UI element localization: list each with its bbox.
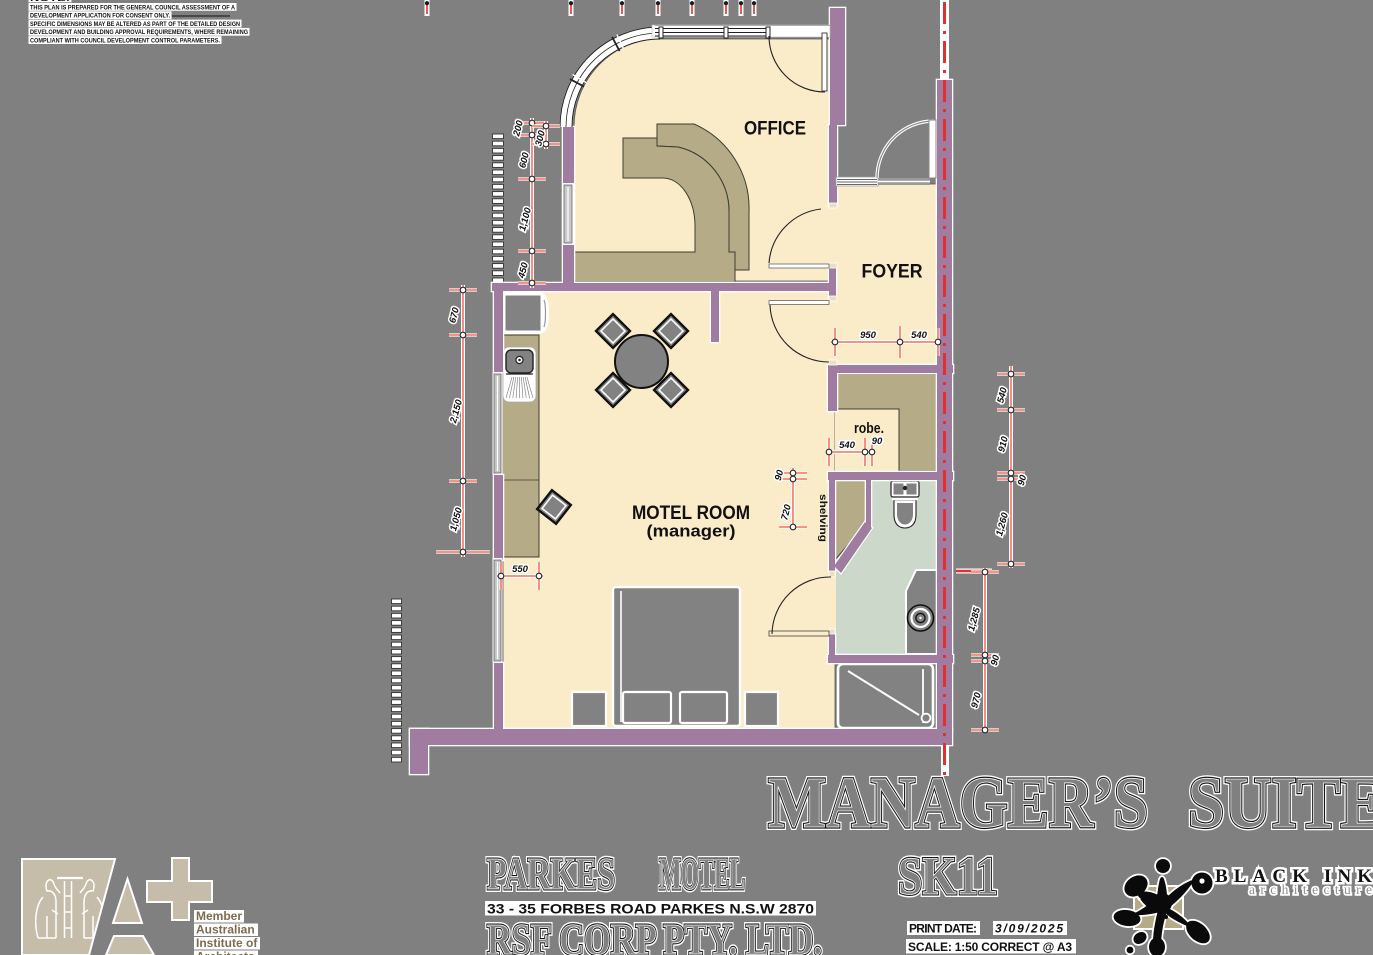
svg-text:SK11: SK11 [898, 846, 998, 906]
svg-text:540: 540 [839, 440, 856, 451]
svg-text:Australian: Australian [196, 923, 255, 937]
svg-text:NOTE:: NOTE: [30, 0, 70, 3]
svg-text:FOYER: FOYER [862, 261, 923, 283]
svg-text:DEVELOPMENT AND BUILDING APPRO: DEVELOPMENT AND BUILDING APPROVAL REQUIR… [30, 29, 248, 36]
svg-text:DEVELOPMENT APPLICATION FOR CO: DEVELOPMENT APPLICATION FOR CONSENT ONLY… [30, 13, 170, 20]
svg-text:MOTEL ROOM: MOTEL ROOM [632, 502, 750, 524]
svg-text:SUITE: SUITE [1188, 762, 1373, 843]
svg-text:SCALE: 1:50 CORRECT @ A3: SCALE: 1:50 CORRECT @ A3 [908, 940, 1072, 954]
svg-text:RSF CORP PTY. LTD.: RSF CORP PTY. LTD. [487, 915, 822, 955]
svg-text:Member: Member [196, 909, 242, 923]
svg-text:SPECIFIC DIMENSIONS MAY BE ALT: SPECIFIC DIMENSIONS MAY BE ALTERED AS PA… [30, 21, 240, 28]
svg-text:COMPLIANT WITH COUNCIL DEVELOP: COMPLIANT WITH COUNCIL DEVELOPMENT CONTR… [30, 38, 220, 45]
svg-text:MANAGER’S: MANAGER’S [768, 762, 1148, 843]
svg-text:Architects: Architects [196, 950, 255, 955]
svg-text:OFFICE: OFFICE [744, 118, 806, 140]
svg-text:33 - 35 FORBES ROAD PARKES N.S: 33 - 35 FORBES ROAD PARKES N.S.W 2870 [487, 901, 814, 917]
svg-text:Institute of: Institute of [196, 936, 258, 950]
svg-text:540: 540 [911, 330, 928, 341]
svg-text:robe.: robe. [854, 421, 884, 437]
svg-text:90: 90 [872, 436, 883, 447]
svg-text:PRINT DATE:: PRINT DATE: [909, 922, 977, 936]
svg-text:PARKES: PARKES [487, 848, 615, 899]
svg-text:MOTEL: MOTEL [659, 848, 745, 899]
svg-text:THIS PLAN IS PREPARED FOR THE: THIS PLAN IS PREPARED FOR THE GENERAL CO… [30, 4, 235, 11]
svg-text:(manager): (manager) [647, 523, 736, 541]
svg-text:shelving: shelving [817, 494, 828, 542]
svg-text:950: 950 [860, 330, 877, 341]
svg-text:550: 550 [512, 564, 529, 575]
